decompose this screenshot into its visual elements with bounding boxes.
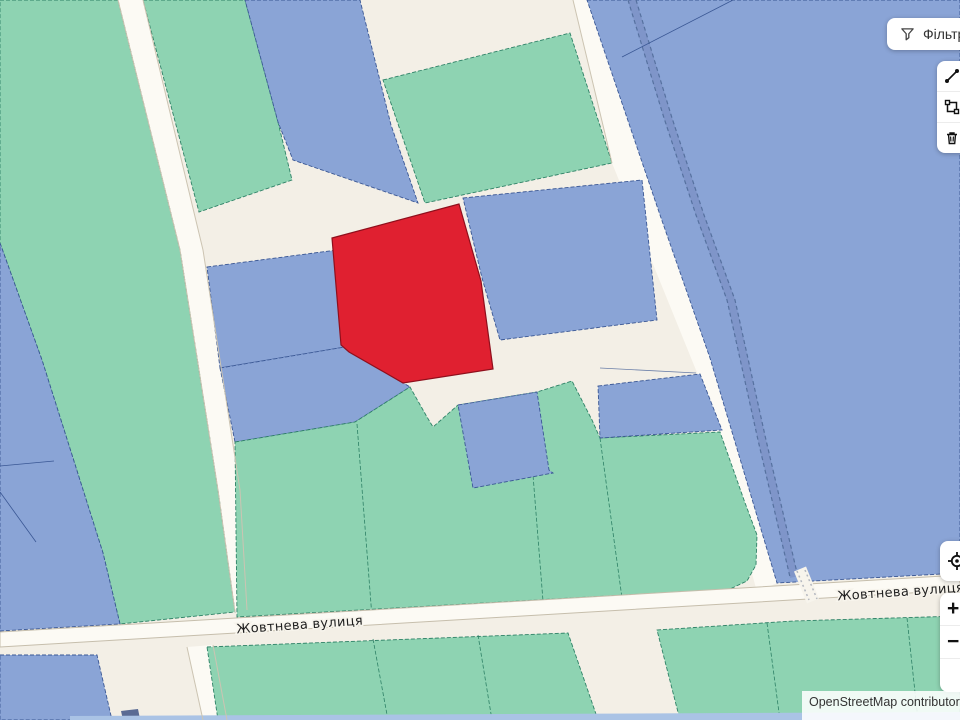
locate-button[interactable] [940, 541, 960, 581]
locate-icon [947, 551, 960, 571]
map-app: { "ui": { "filter_button": { "label": "Ф… [0, 0, 960, 720]
filter-button-label: Фільтр [923, 26, 960, 42]
measure-area-icon [944, 99, 960, 115]
map-attribution: OpenStreetMap contributors [802, 691, 960, 720]
measure-line-icon [944, 68, 960, 84]
funnel-icon [900, 27, 915, 42]
filter-button[interactable]: Фільтр [887, 18, 960, 50]
zoom-out-label: − [947, 630, 959, 654]
trash-icon [944, 130, 960, 146]
zoom-panel: + − ▲ ▼ [940, 593, 960, 692]
map-canvas[interactable]: Жовтнева вулицяЖовтнева вулиця [0, 0, 960, 720]
parcel-blue[interactable] [0, 655, 112, 720]
delete-measure-button[interactable] [937, 123, 960, 153]
parcel-boundary [600, 368, 696, 373]
zoom-in-button[interactable]: + [940, 593, 960, 626]
parcel-blue[interactable] [463, 180, 657, 340]
parcel-blue[interactable] [598, 374, 722, 438]
measure-area-button[interactable] [937, 92, 960, 123]
selected-parcel-red[interactable] [332, 204, 493, 383]
parcel-blue[interactable] [458, 392, 553, 488]
parcel-green[interactable] [383, 33, 612, 203]
zoom-in-label: + [947, 597, 959, 621]
measure-distance-button[interactable] [937, 61, 960, 92]
pan-button[interactable]: ▲ ▼ [940, 659, 960, 692]
zoom-out-button[interactable]: − [940, 626, 960, 659]
measure-toolbar [937, 61, 960, 153]
parcel-green[interactable] [207, 633, 600, 720]
attribution-text: OpenStreetMap contributors [809, 695, 960, 709]
